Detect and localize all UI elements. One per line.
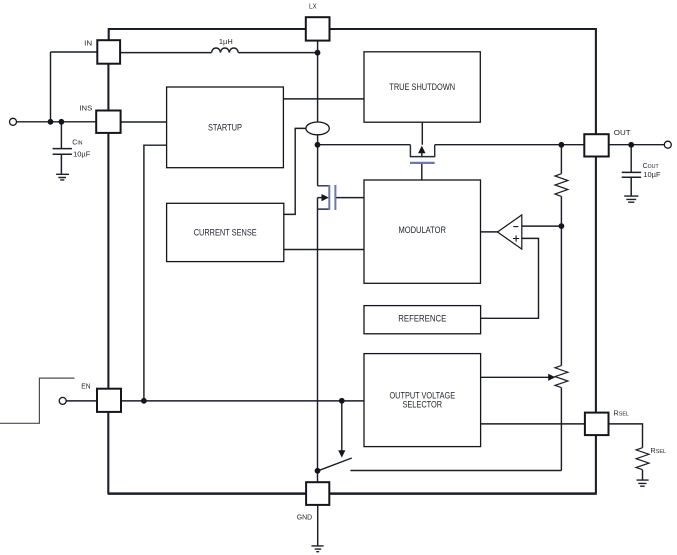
svg-text:CURRENT SENSE: CURRENT SENSE xyxy=(194,227,257,237)
svg-text:CIN: CIN xyxy=(72,140,83,147)
svg-text:STARTUP: STARTUP xyxy=(208,122,242,132)
svg-text:IN: IN xyxy=(84,40,92,47)
svg-text:1µH: 1µH xyxy=(219,39,233,46)
svg-text:OUT: OUT xyxy=(614,130,632,137)
svg-text:INS: INS xyxy=(79,106,92,113)
svg-text:LX: LX xyxy=(309,4,317,11)
svg-text:RSEL: RSEL xyxy=(613,409,629,418)
svg-text:RSEL: RSEL xyxy=(650,446,666,455)
svg-text:10µF: 10µF xyxy=(643,170,661,179)
svg-text:SELECTOR: SELECTOR xyxy=(402,400,442,410)
svg-text:GND: GND xyxy=(297,514,312,521)
svg-text:TRUE SHUTDOWN: TRUE SHUTDOWN xyxy=(389,82,455,92)
svg-text:10µF: 10µF xyxy=(73,150,91,159)
svg-text:MODULATOR: MODULATOR xyxy=(398,225,446,235)
svg-text:EN: EN xyxy=(81,384,90,391)
svg-text:REFERENCE: REFERENCE xyxy=(398,314,446,324)
